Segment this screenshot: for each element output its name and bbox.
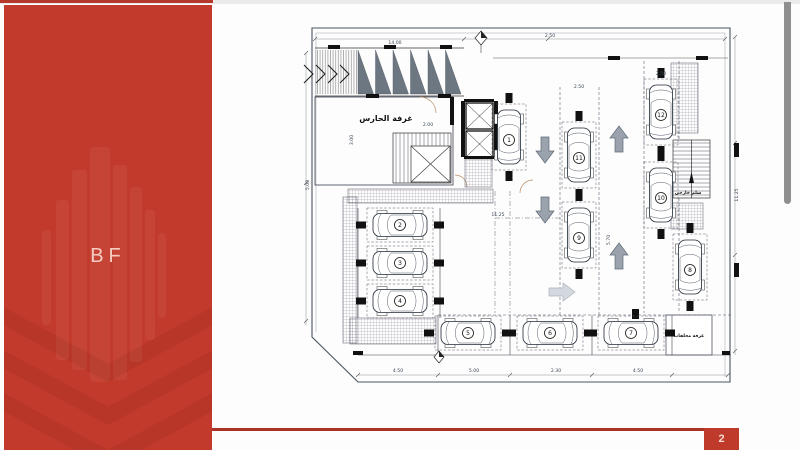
dimension-text: 3.00 — [349, 135, 355, 145]
dimension-text: 4.50 — [633, 368, 643, 374]
dimension-text: 2.30 — [551, 368, 561, 374]
dimension-text: 2.00 — [423, 122, 433, 128]
dimension-text: 2.50 — [574, 84, 584, 90]
parking-space-8: 8 — [673, 223, 707, 311]
car-number: 8 — [688, 267, 692, 274]
dimension-text: 5.00 — [305, 180, 311, 190]
dimension-text: 11.25 — [491, 212, 504, 218]
page-number-badge: 2 — [704, 428, 739, 450]
wall-segment — [461, 101, 465, 157]
footer-accent-line — [212, 428, 704, 431]
page-number: 2 — [718, 433, 724, 445]
car-number: 4 — [398, 298, 402, 305]
dimension-text: 2.50 — [545, 33, 555, 39]
dimension-text: 5.70 — [606, 235, 612, 245]
room-label: غرفة الحارس — [359, 114, 412, 124]
wall-segment — [464, 99, 494, 102]
wall-segment — [464, 156, 494, 159]
wall-segment — [734, 263, 739, 277]
elevator-shafts — [466, 103, 493, 157]
hatched-area — [348, 189, 493, 203]
hatched-area — [465, 159, 492, 187]
room-label: غرفة مخلفات — [674, 334, 704, 339]
parking-space-2: 2 — [356, 208, 444, 242]
direction-arrow-down — [536, 137, 554, 163]
floor-plan: 12345678910111214.002.502.502.5011.255.7… — [298, 25, 743, 395]
direction-arrow-down — [536, 197, 554, 223]
main-staircase — [393, 133, 451, 183]
building-watermark — [4, 5, 212, 450]
wall-segment — [440, 45, 452, 49]
car-number: 9 — [577, 235, 581, 242]
logo-bf: BF — [4, 245, 212, 268]
parking-space-3: 3 — [356, 246, 444, 280]
brand-sidebar: BF — [4, 5, 212, 450]
dimension-text: 5.00 — [469, 368, 479, 374]
room-label: سلم خارجي — [675, 191, 702, 196]
wall-segment — [450, 97, 454, 125]
car-number: 6 — [548, 330, 552, 337]
dimension-text: 4.50 — [393, 368, 403, 374]
parking-space-5: 5 — [424, 316, 512, 350]
direction-arrow-up — [610, 243, 628, 269]
wall-segment — [608, 56, 620, 60]
parking-space-6: 6 — [506, 316, 594, 350]
wall-segment — [438, 94, 451, 98]
car-number: 7 — [629, 330, 633, 337]
wall-segment — [722, 351, 730, 355]
wall-segment — [328, 45, 340, 49]
accent-top-bar — [0, 0, 213, 3]
wall-segment — [696, 56, 708, 60]
wall-segment — [353, 351, 363, 355]
wall-segment — [632, 309, 639, 319]
car-number: 11 — [575, 155, 583, 162]
car-ramp — [304, 48, 464, 96]
direction-arrow-right — [549, 283, 575, 301]
parking-space-4: 4 — [356, 284, 444, 318]
scrollbar-thumb[interactable] — [784, 2, 791, 204]
car-number: 1 — [507, 137, 511, 144]
car-number: 5 — [466, 330, 470, 337]
ramp-triangles — [358, 50, 461, 94]
wall-segment — [734, 143, 739, 157]
dimension-text: 2.50 — [656, 71, 666, 77]
dimension-text: 11.25 — [734, 188, 740, 201]
wall-segment — [366, 94, 379, 98]
direction-arrow-up — [610, 126, 628, 152]
car-number: 3 — [398, 260, 402, 267]
car-number: 2 — [398, 222, 402, 229]
parking-space-7: 7 — [587, 316, 675, 350]
hatched-area — [350, 318, 436, 344]
floor-plan-drawing: 12345678910111214.002.502.502.5011.255.7… — [298, 25, 743, 395]
dimension-text: 14.00 — [388, 40, 401, 46]
external-staircase — [673, 140, 710, 198]
car-number: 10 — [657, 195, 665, 202]
car-number: 12 — [657, 112, 665, 119]
parking-space-11: 11 — [562, 111, 596, 199]
parking-space-9: 9 — [562, 191, 596, 279]
